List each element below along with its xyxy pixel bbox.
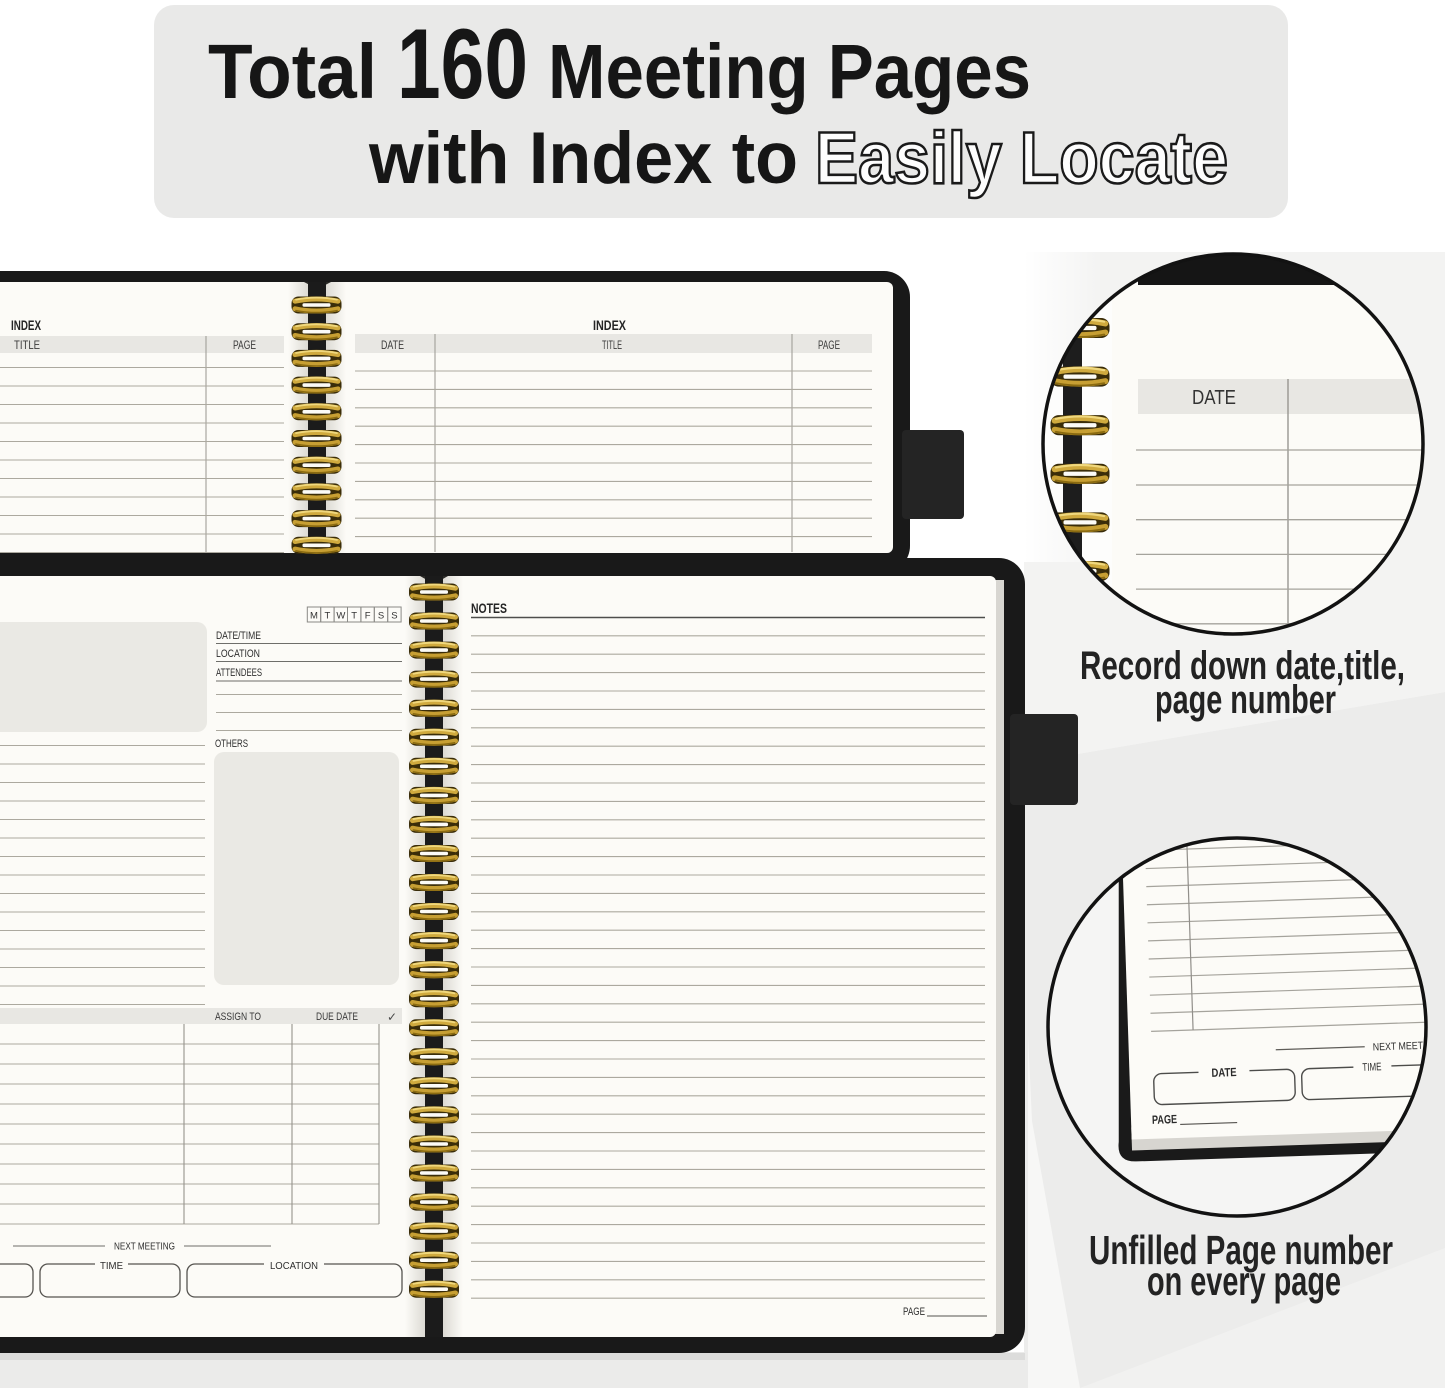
svg-text:ATTENDEES: ATTENDEES: [216, 667, 262, 679]
svg-text:PAGE: PAGE: [903, 1306, 925, 1318]
svg-text:TIME: TIME: [1362, 1061, 1381, 1074]
svg-text:W: W: [336, 611, 345, 622]
svg-text:TITLE: TITLE: [602, 340, 622, 352]
svg-text:LOCATION: LOCATION: [216, 648, 260, 660]
svg-text:OTHERS: OTHERS: [215, 738, 248, 750]
svg-text:DUE DATE: DUE DATE: [316, 1011, 358, 1023]
svg-text:T: T: [324, 611, 330, 622]
svg-text:ASSIGN TO: ASSIGN TO: [215, 1011, 261, 1023]
svg-text:T: T: [351, 611, 357, 622]
svg-text:S: S: [378, 611, 384, 622]
svg-text:TIME: TIME: [100, 1260, 123, 1272]
svg-text:INDEX: INDEX: [11, 317, 41, 333]
svg-text:PAGE: PAGE: [1152, 1112, 1177, 1127]
svg-text:Meeting Pages: Meeting Pages: [548, 29, 1031, 115]
svg-text:160: 160: [397, 8, 528, 119]
svg-text:PAGE: PAGE: [818, 340, 840, 352]
svg-text:page number: page number: [1155, 678, 1336, 722]
svg-text:DATE: DATE: [1192, 387, 1236, 409]
svg-text:DATE: DATE: [1211, 1065, 1236, 1080]
svg-text:NOTES: NOTES: [471, 601, 507, 616]
svg-text:LOCATION: LOCATION: [270, 1260, 318, 1272]
svg-text:PAGE: PAGE: [233, 340, 256, 352]
svg-text:NEXT MEETING: NEXT MEETING: [114, 1241, 175, 1253]
svg-text:F: F: [365, 611, 371, 622]
svg-text:✓: ✓: [387, 1010, 397, 1024]
svg-text:on every page: on every page: [1147, 1258, 1341, 1304]
svg-text:with Index to: with Index to: [368, 118, 798, 199]
svg-text:Easily Locate: Easily Locate: [815, 118, 1228, 199]
svg-text:INDEX: INDEX: [593, 317, 627, 333]
svg-text:M: M: [310, 611, 318, 622]
svg-text:TITLE: TITLE: [14, 340, 40, 352]
svg-text:Total: Total: [208, 29, 377, 115]
svg-text:DATE: DATE: [381, 340, 404, 352]
svg-text:S: S: [391, 611, 397, 622]
svg-text:DATE/TIME: DATE/TIME: [216, 630, 261, 642]
